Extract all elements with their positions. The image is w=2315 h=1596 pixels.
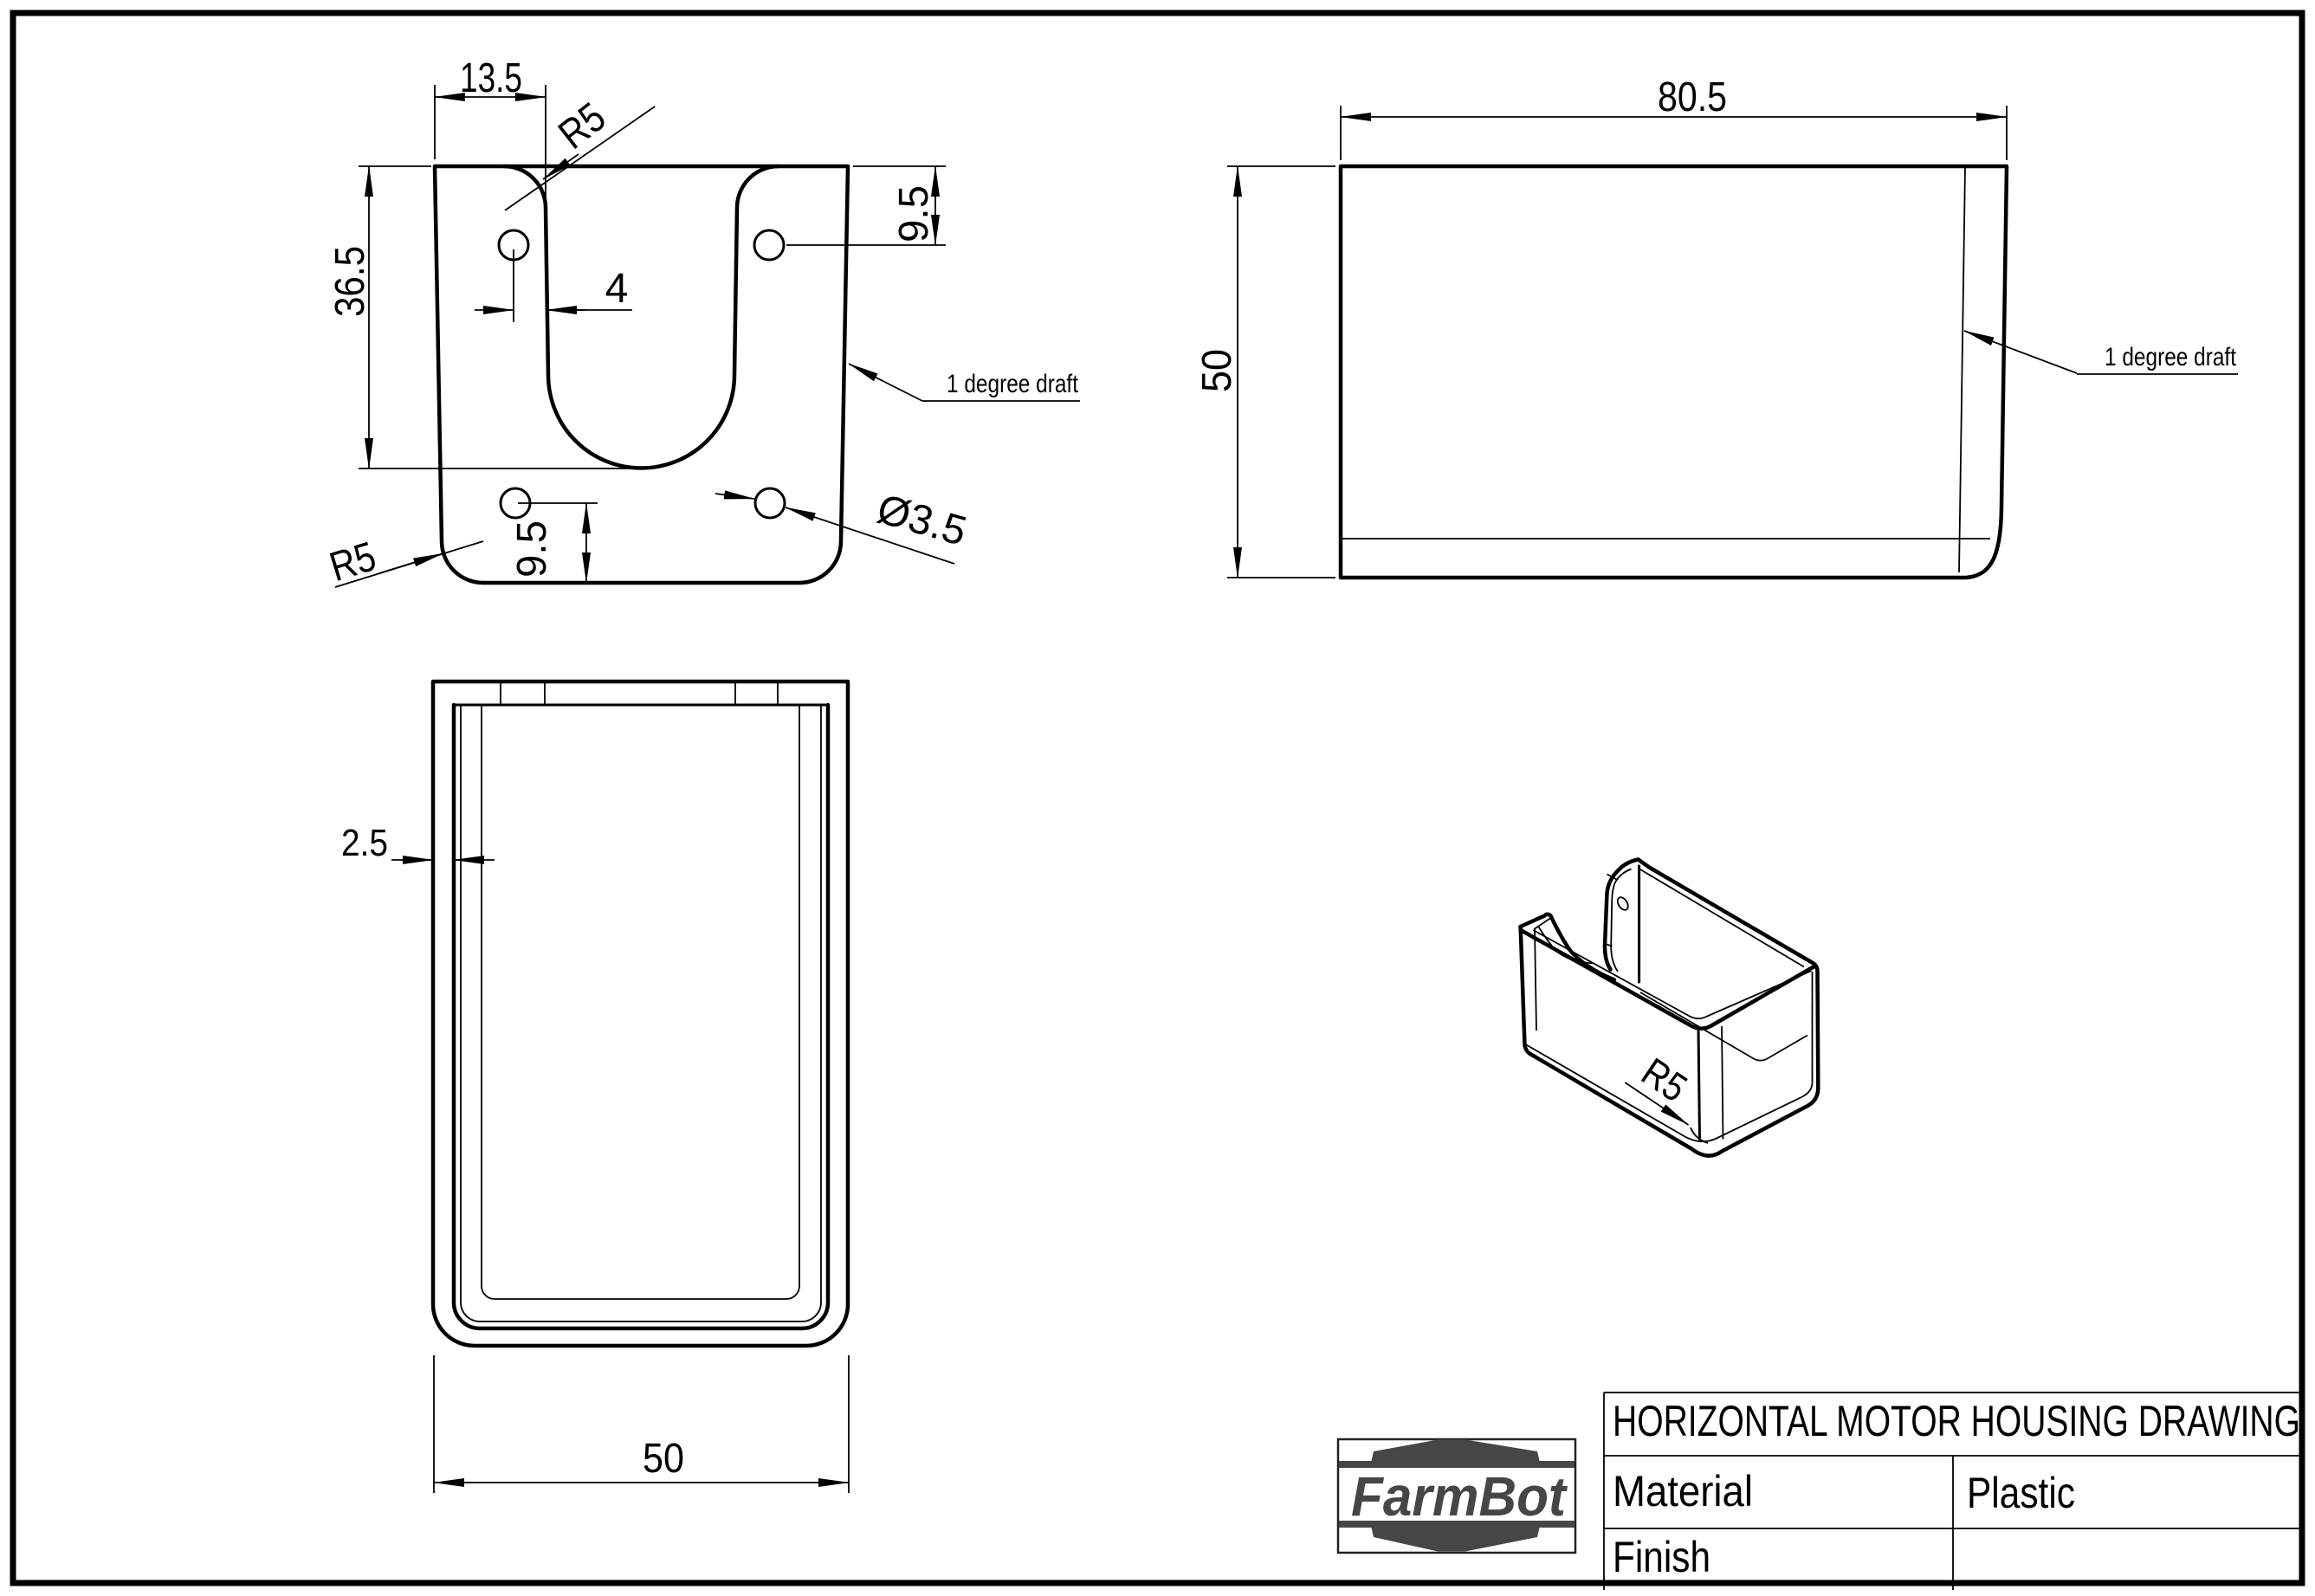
- svg-text:9.5: 9.5: [891, 185, 937, 242]
- svg-text:13.5: 13.5: [460, 55, 522, 101]
- svg-text:36.5: 36.5: [327, 246, 373, 317]
- svg-text:Finish: Finish: [1613, 1533, 1710, 1581]
- svg-text:4: 4: [605, 266, 629, 312]
- svg-text:FarmBot: FarmBot: [1351, 1465, 1568, 1528]
- svg-text:HORIZONTAL MOTOR HOUSING DRAWI: HORIZONTAL MOTOR HOUSING DRAWING: [1613, 1397, 2300, 1445]
- svg-text:50: 50: [643, 1436, 684, 1482]
- svg-text:50: 50: [1194, 349, 1240, 392]
- svg-text:1 degree draft: 1 degree draft: [947, 370, 1079, 398]
- svg-text:Plastic: Plastic: [1967, 1469, 2075, 1517]
- svg-text:9.5: 9.5: [509, 520, 555, 578]
- svg-text:2.5: 2.5: [341, 822, 388, 864]
- svg-text:80.5: 80.5: [1658, 74, 1727, 120]
- svg-text:1 degree draft: 1 degree draft: [2105, 343, 2237, 372]
- svg-text:Material: Material: [1613, 1467, 1753, 1515]
